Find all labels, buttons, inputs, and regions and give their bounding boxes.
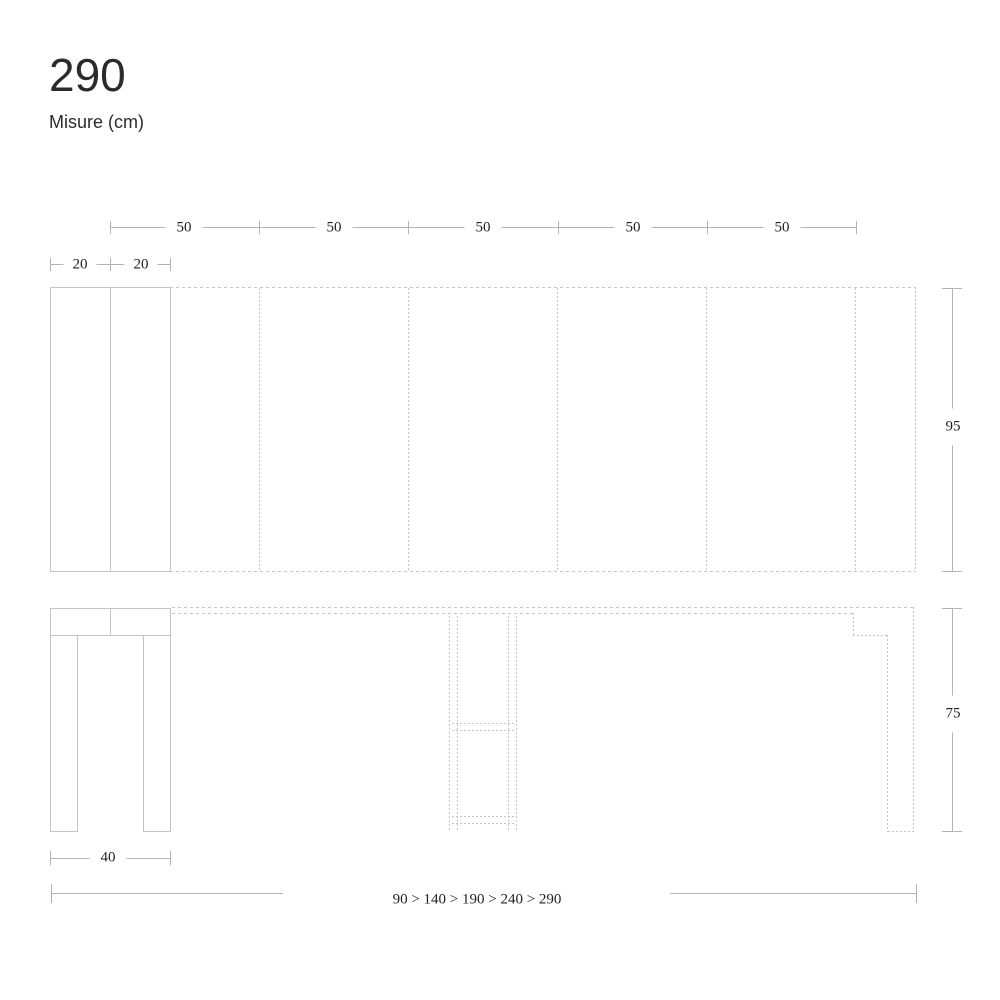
- extended-leg-bottom-dotted: [888, 831, 914, 832]
- dim-label-50-5: 50: [764, 220, 801, 237]
- dim-line-overall-right: [670, 893, 916, 894]
- dim-label-height-75: 75: [943, 696, 964, 733]
- dim-tick: [110, 221, 111, 234]
- dim-label-20-1: 20: [64, 257, 97, 274]
- extension-top-edge-dashed: [170, 287, 916, 288]
- trestle-upper-rail-line: [452, 730, 514, 731]
- dim-tick: [170, 851, 171, 865]
- dim-label-50-4: 50: [615, 220, 652, 237]
- extended-right-edge-dotted: [915, 287, 916, 572]
- apron-center-joint-line: [110, 608, 111, 636]
- dim-label-50-3: 50: [465, 220, 502, 237]
- extension-leaf-divider: [557, 288, 558, 571]
- dim-tick: [50, 851, 51, 865]
- dim-line-overall-left: [51, 893, 283, 894]
- front-right-leg: [143, 635, 171, 832]
- dim-label-50-2: 50: [316, 220, 353, 237]
- dim-tick: [50, 258, 51, 271]
- trestle-lower-rail-line: [452, 816, 514, 817]
- extension-sequence-label: 90 > 140 > 190 > 240 > 290: [393, 892, 562, 909]
- dim-tick: [856, 221, 857, 234]
- dim-label-depth-95: 95: [943, 409, 964, 446]
- extension-leaf-divider: [408, 288, 409, 571]
- extension-leaf-divider: [855, 288, 856, 571]
- extended-apron-edge-dotted: [853, 613, 854, 636]
- front-left-leg: [50, 635, 78, 832]
- dim-tick: [170, 258, 171, 271]
- page-title: 290: [49, 52, 126, 98]
- dim-tick: [707, 221, 708, 234]
- dim-tick: [259, 221, 260, 234]
- dim-tick: [942, 571, 962, 572]
- extended-tabletop-bottom-line-dashed: [172, 613, 853, 614]
- dim-tick: [558, 221, 559, 234]
- dim-tick: [408, 221, 409, 234]
- dim-tick: [110, 258, 111, 271]
- trestle-lower-rail-line: [452, 823, 514, 824]
- dim-label-20-2: 20: [125, 257, 158, 274]
- dim-label-50-1: 50: [166, 220, 203, 237]
- extended-leg-inner-edge-dotted: [887, 635, 888, 832]
- page-subtitle: Misure (cm): [49, 112, 144, 133]
- extension-leaf-divider: [259, 288, 260, 571]
- dim-tick: [51, 884, 52, 903]
- tabletop-center-joint-line: [110, 287, 111, 572]
- dim-tick: [942, 831, 962, 832]
- trestle-post-line: [516, 616, 517, 831]
- dim-tick: [916, 884, 917, 903]
- extension-bottom-edge-dashed: [170, 571, 916, 572]
- dim-label-base-40: 40: [90, 850, 127, 867]
- technical-drawing-canvas: 290 Misure (cm) 50 50 50 50 50 20 20: [0, 0, 1000, 1000]
- extended-leg-outer-edge-dotted: [913, 607, 914, 832]
- trestle-post-line: [449, 616, 450, 831]
- dim-tick: [942, 608, 962, 609]
- dim-tick: [942, 288, 962, 289]
- extended-tabletop-top-line-dashed: [172, 607, 914, 608]
- extension-leaf-divider: [706, 288, 707, 571]
- trestle-upper-rail-line: [452, 723, 514, 724]
- extended-apron-bottom-dotted: [853, 635, 888, 636]
